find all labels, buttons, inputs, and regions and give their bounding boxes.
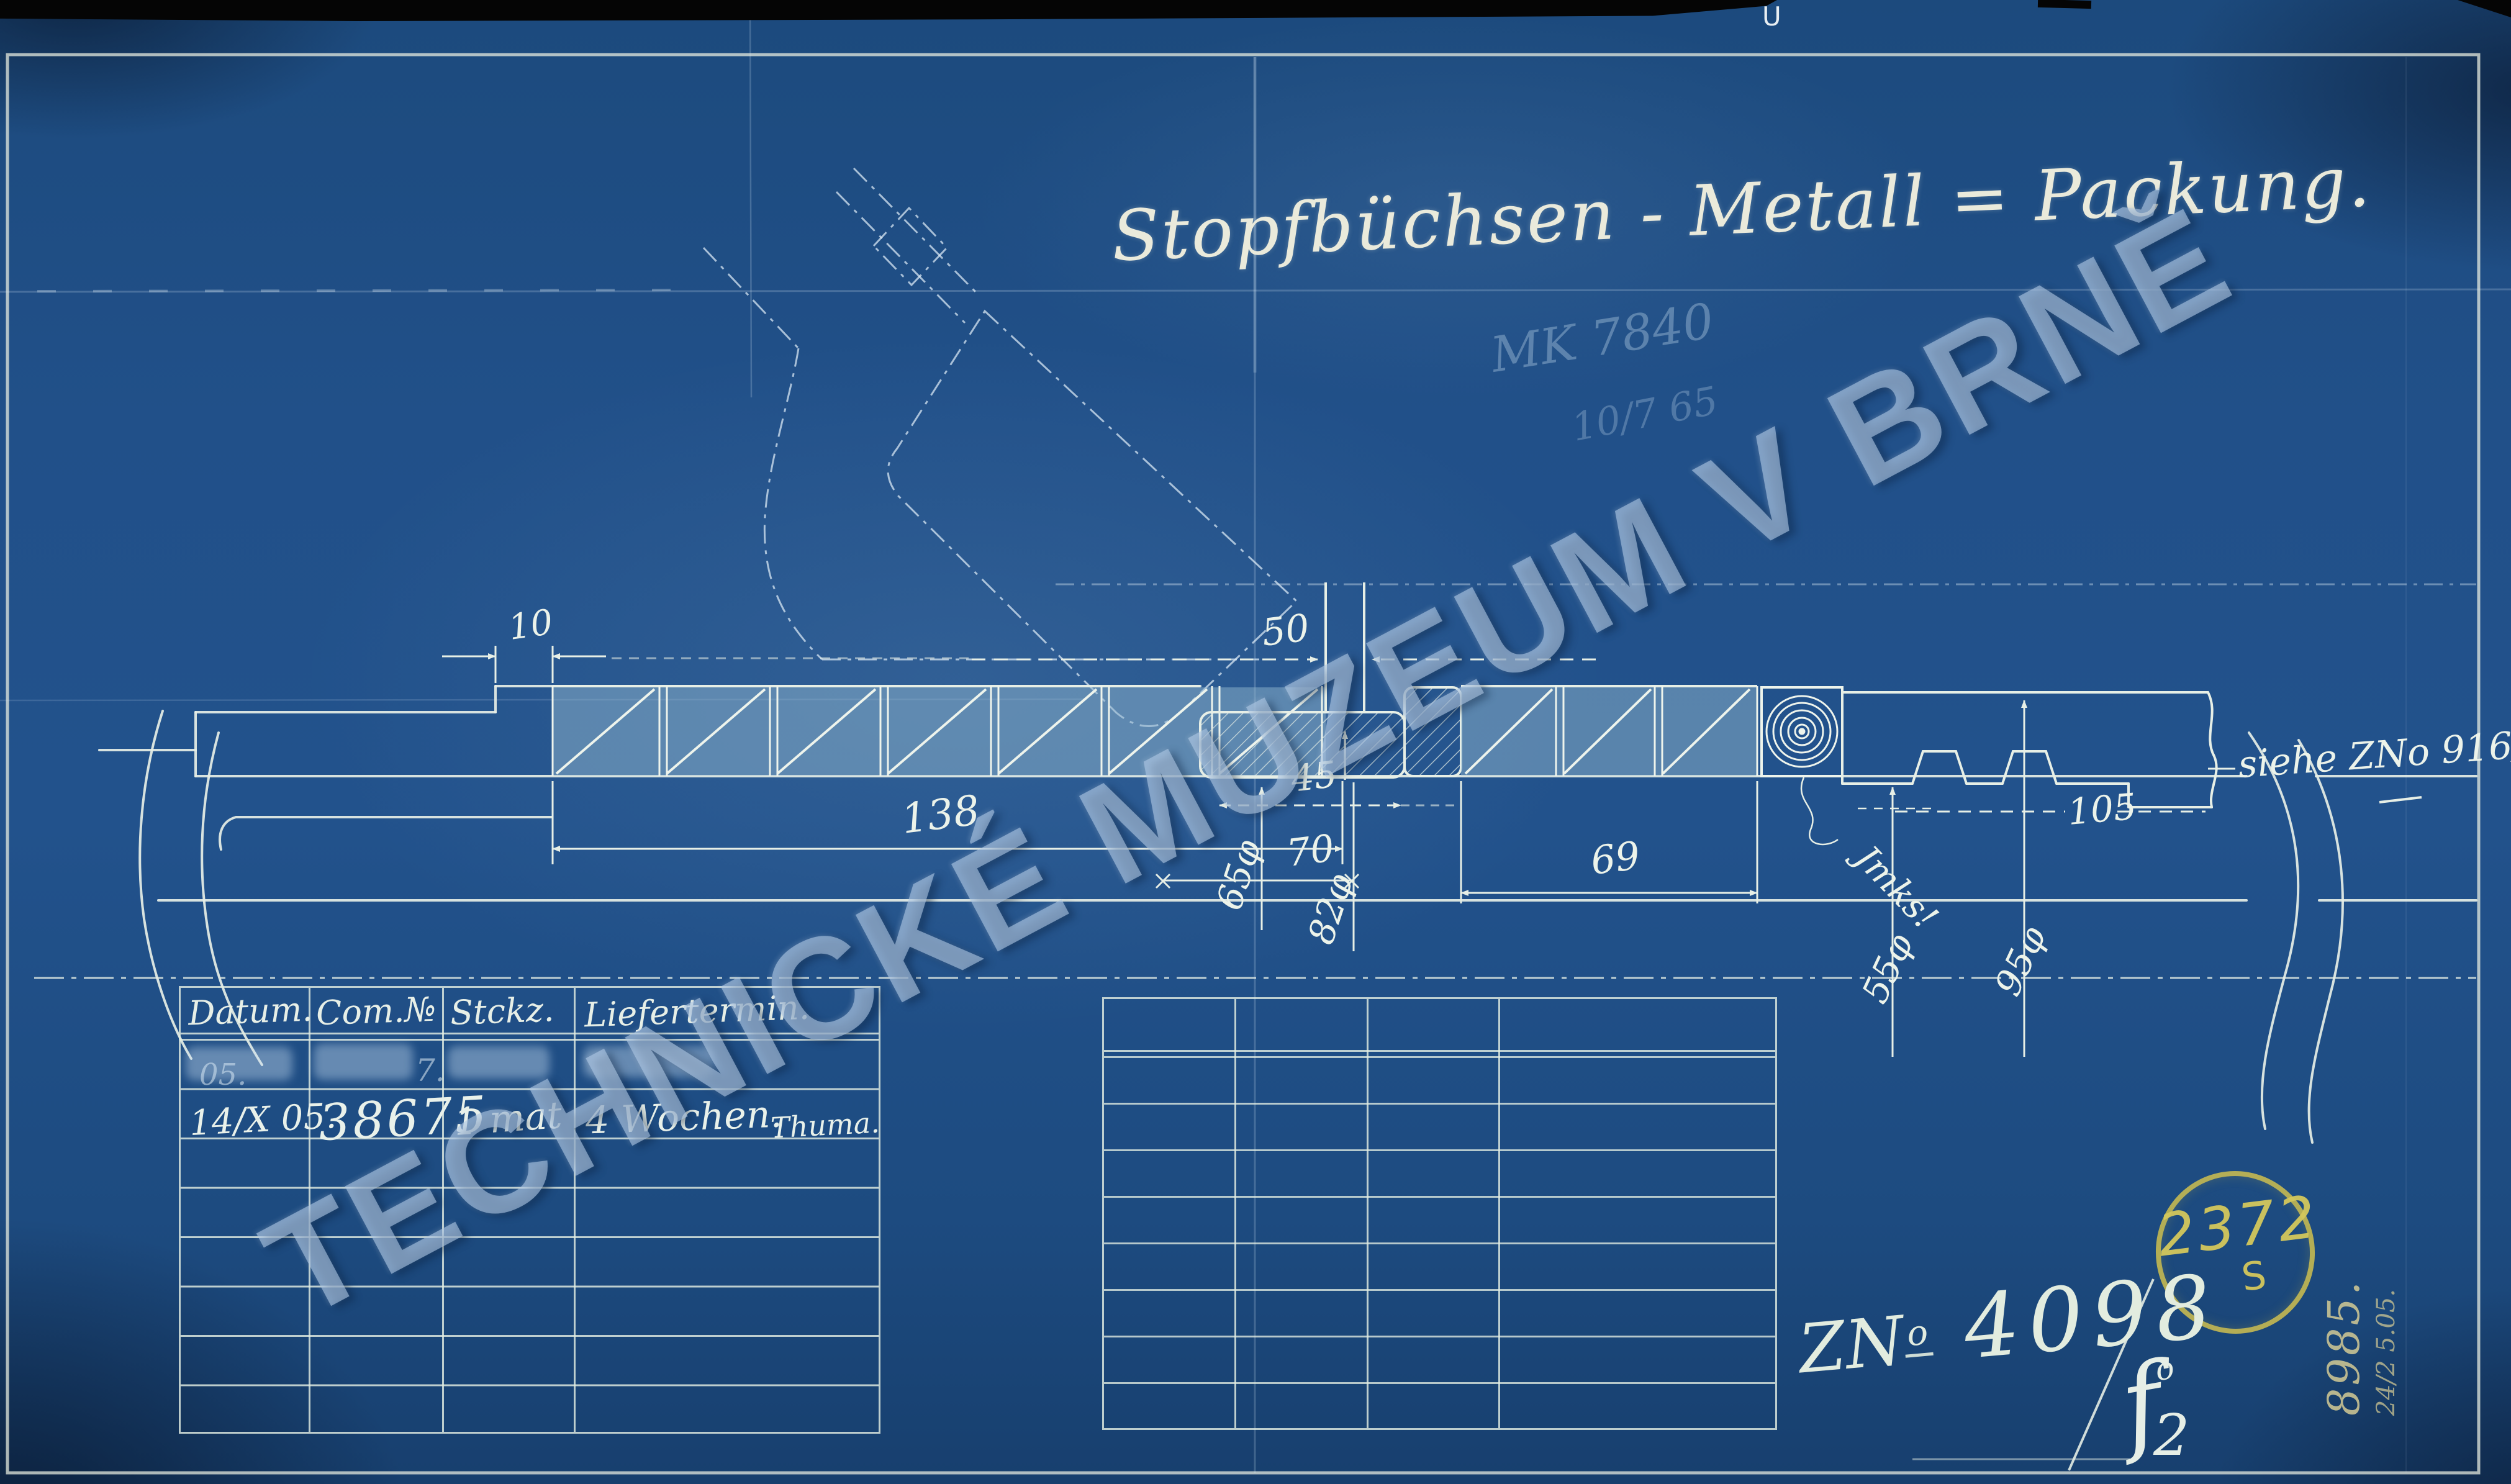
dim-label: 70 bbox=[1284, 826, 1336, 875]
dim-label: 69 bbox=[1588, 833, 1642, 884]
header-double-line bbox=[1104, 1050, 1775, 1052]
dim-label: 95φ bbox=[1986, 920, 2055, 1002]
erased-smudge bbox=[583, 1046, 713, 1077]
column-header-stckz: Stckz. bbox=[450, 990, 554, 1033]
table-row-lines bbox=[1104, 1056, 1775, 1428]
dimension-69: 69 bbox=[1461, 781, 1757, 903]
record-table: Datum. Com.№ Stckz. Liefertermin. 05. 7.… bbox=[179, 986, 880, 1434]
archive-number: 8985. bbox=[2319, 1279, 2369, 1416]
dim-label: 10 bbox=[506, 602, 556, 648]
drawing-number-sup: o bbox=[1901, 1312, 1934, 1358]
erased-smudge bbox=[448, 1046, 550, 1079]
column-header-liefertermin: Liefertermin. bbox=[584, 988, 810, 1035]
archive-date: 24/2 5.05. bbox=[2372, 1279, 2400, 1416]
entry-signature: Thuma. bbox=[770, 1105, 880, 1144]
erased-smudge bbox=[314, 1044, 413, 1080]
scan-edge-mid bbox=[2038, 0, 2091, 9]
packing-rings-right bbox=[1461, 686, 1757, 776]
column-header-comno: Com.№ bbox=[315, 990, 437, 1033]
dim-label: 105 bbox=[2066, 785, 2138, 833]
dim-label: 50 bbox=[1259, 606, 1311, 655]
entry-datum: 14/X 05. bbox=[188, 1096, 337, 1144]
reference-note: siehe ZNo 916/xx. bbox=[2208, 720, 2511, 802]
header-double-line bbox=[181, 1033, 879, 1034]
blueprint-scan: 10 50 138 45 70 65φ bbox=[0, 0, 2511, 1484]
erased-smudge bbox=[186, 1047, 292, 1080]
spiral-ring bbox=[1762, 687, 1842, 776]
dimension-105: 105 bbox=[1895, 785, 2206, 833]
dimension-65: 65φ bbox=[1208, 787, 1270, 930]
dimension-95: 95φ bbox=[1986, 700, 2055, 1057]
spiral-note: Jmks! bbox=[1801, 777, 1945, 938]
erased-remnant-comno: 7. bbox=[415, 1052, 445, 1088]
drawing-number-prefix: ZN bbox=[1796, 1302, 1907, 1388]
note-label: Jmks! bbox=[1843, 833, 1945, 938]
ground-ring bbox=[1405, 687, 1461, 776]
archive-side-note: 8985. 24/2 5.05. bbox=[2319, 1279, 2400, 1416]
sheet-number: 2 bbox=[2153, 1402, 2190, 1468]
dim-label: 45 bbox=[1288, 753, 1339, 800]
empty-table bbox=[1102, 997, 1777, 1430]
entry-liefertermin: 4 Wochen. bbox=[585, 1092, 783, 1142]
edge-mark: U bbox=[1762, 1, 1781, 32]
sleeve-right bbox=[1842, 692, 2217, 807]
dim-label: 138 bbox=[899, 786, 982, 843]
dim-label: 65φ bbox=[1208, 835, 1270, 915]
column-header-datum: Datum. bbox=[188, 990, 313, 1033]
dim-label: 55φ bbox=[1853, 927, 1922, 1010]
dimension-10: 10 bbox=[442, 602, 606, 683]
entry-stckz: 1 mat bbox=[453, 1093, 563, 1144]
dimension-50: 50 bbox=[612, 606, 1596, 659]
